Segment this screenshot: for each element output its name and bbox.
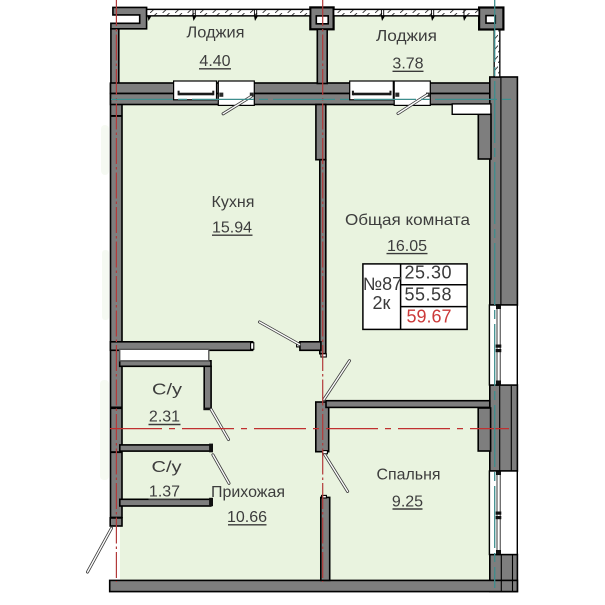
- svg-text:2.31: 2.31: [149, 409, 180, 426]
- svg-text:Спальня: Спальня: [377, 467, 441, 484]
- svg-text:Общая комната: Общая комната: [345, 212, 470, 229]
- svg-text:59.67: 59.67: [407, 307, 452, 327]
- svg-text:55.58: 55.58: [405, 285, 452, 305]
- svg-text:С/у: С/у: [152, 459, 182, 476]
- svg-text:Лоджия: Лоджия: [376, 28, 437, 45]
- svg-text:С/у: С/у: [152, 382, 182, 399]
- svg-text:15.94: 15.94: [212, 220, 252, 237]
- svg-text:25.30: 25.30: [405, 263, 452, 283]
- svg-text:Лоджия: Лоджия: [187, 25, 245, 42]
- svg-text:3.78: 3.78: [392, 56, 423, 73]
- svg-text:Кухня: Кухня: [212, 194, 255, 211]
- svg-text:10.66: 10.66: [227, 509, 267, 526]
- svg-text:4.40: 4.40: [199, 53, 230, 70]
- svg-text:16.05: 16.05: [387, 238, 427, 255]
- svg-text:1.37: 1.37: [149, 484, 180, 501]
- svg-text:Прихожая: Прихожая: [211, 484, 285, 501]
- svg-text:№87: №87: [363, 274, 402, 294]
- svg-text:9.25: 9.25: [392, 493, 423, 510]
- svg-text:2к: 2к: [373, 293, 391, 313]
